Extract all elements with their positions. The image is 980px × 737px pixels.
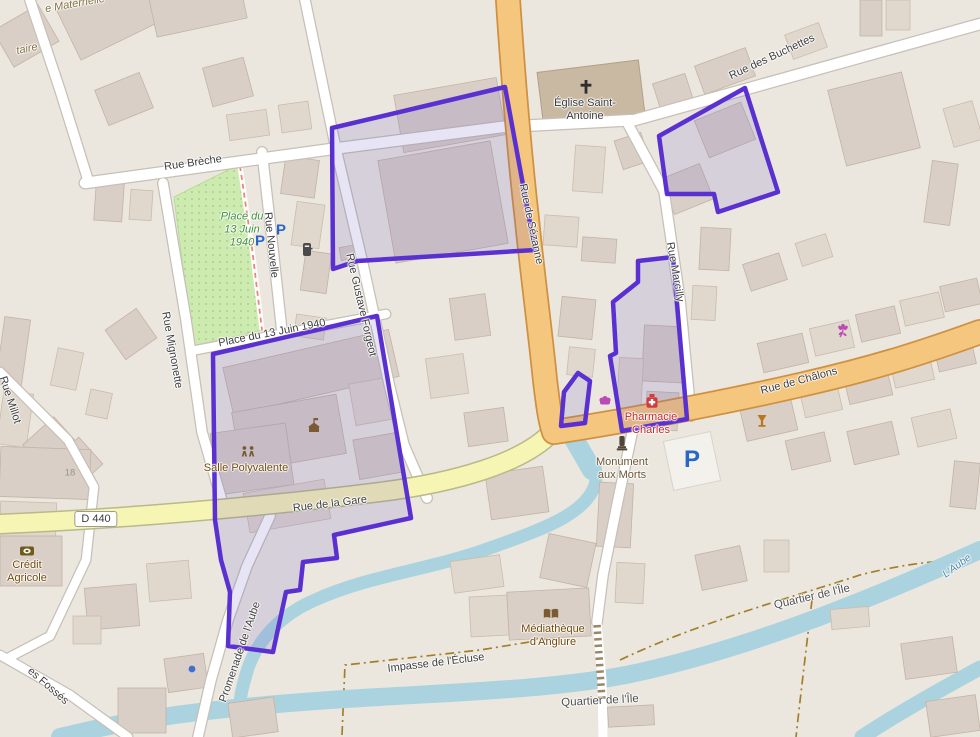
parking-icon-large: P [684, 446, 700, 474]
house-number-18: 18 [65, 468, 76, 479]
poi-label-eglise-saint-antoine: Église Saint- Antoine [554, 97, 616, 123]
library-book-icon [544, 609, 558, 619]
bank-icon [20, 547, 34, 556]
poi-label-credit-agricole: Crédit Agricole [7, 559, 47, 585]
poi-label-salle-polyvalente: Salle Polyvalente [204, 462, 288, 474]
poi-label-mediatheque-anglure: Médiathèque d'Anglure [521, 623, 585, 649]
parking-icon-small-2: P [255, 233, 265, 250]
poi-label-monument-aux-morts: Monument aux Morts [596, 456, 648, 482]
poi-dot-icon [189, 666, 196, 673]
poi-label-pharmacie-charles: Pharmacie Charles [625, 411, 678, 437]
parking-icon-small-1: P [276, 222, 286, 239]
map-canvas[interactable]: e Maternelle taire Rue Brèche Rue des Bu… [0, 0, 980, 737]
road-ref-badge-d440: D 440 [74, 511, 117, 527]
